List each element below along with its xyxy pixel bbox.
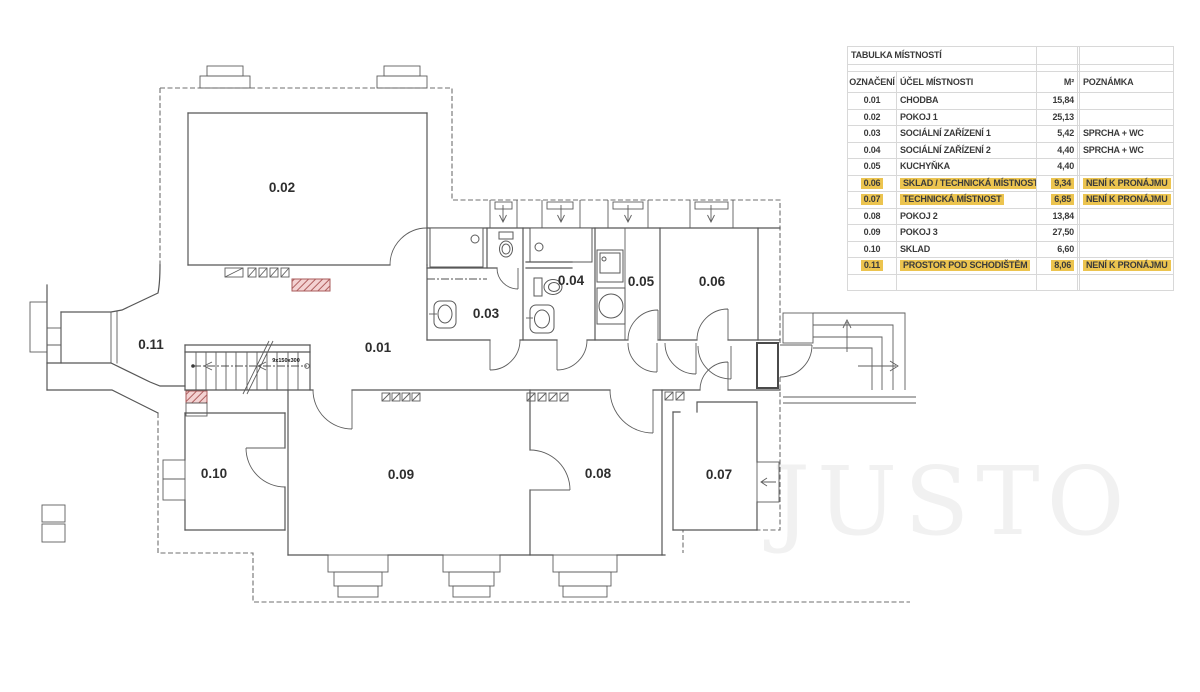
table-title: TABULKA MÍSTNOSTÍ [848,47,1037,64]
cell-note [1080,225,1173,241]
table-row: 0.04SOCIÁLNÍ ZAŘÍZENÍ 24,40SPRCHA + WC [848,142,1173,159]
cell-note: SPRCHA + WC [1080,126,1173,142]
room-label-0.06: 0.06 [699,274,726,289]
cell-area: 4,40 [1037,159,1080,175]
cell-designation: 0.04 [848,143,897,159]
cell-purpose: SOCIÁLNÍ ZAŘÍZENÍ 1 [897,126,1037,142]
cell-designation: 0.11 [848,258,897,274]
stair-annotation: 9x150x300 [272,358,300,364]
empty-cell [1037,275,1080,290]
cell-designation: 0.01 [848,93,897,109]
cell-area: 8,06 [1037,258,1080,274]
cell-note [1080,209,1173,225]
cell-purpose: SOCIÁLNÍ ZAŘÍZENÍ 2 [897,143,1037,159]
cell-note: NENÍ K PRONÁJMU [1080,192,1173,208]
cell-purpose: POKOJ 1 [897,110,1037,126]
table-row: 0.09POKOJ 327,50 [848,224,1173,241]
room-label-0.05: 0.05 [628,274,655,289]
bathroom-0-04-fixtures [526,228,592,370]
cell-area: 6,85 [1037,192,1080,208]
cell-note [1080,93,1173,109]
column-header-3: POZNÁMKA [1080,72,1173,92]
cell-designation: 0.10 [848,242,897,258]
table-title-spacer [1080,47,1173,64]
room-0-02-walls [188,113,427,265]
table-row: 0.11PROSTOR POD SCHODIŠTĚM8,06NENÍ K PRO… [848,257,1173,274]
cell-note: SPRCHA + WC [1080,143,1173,159]
cell-note [1080,242,1173,258]
column-header-2: M² [1037,72,1080,92]
cell-area: 9,34 [1037,176,1080,192]
table-title-row: TABULKA MÍSTNOSTÍ [848,47,1173,64]
empty-cell [897,275,1037,290]
table-row: 0.07TECHNICKÁ MÍSTNOST6,85NENÍ K PRONÁJM… [848,191,1173,208]
room-0-06-doors [665,309,731,379]
room-label-0.04: 0.04 [558,273,585,288]
room-label-0.09: 0.09 [388,467,414,482]
cell-area: 13,84 [1037,209,1080,225]
cell-note: NENÍ K PRONÁJMU [1080,258,1173,274]
entry-stairs [780,313,916,403]
cell-purpose: CHODBA [897,93,1037,109]
room-label-0.01: 0.01 [365,340,392,355]
cell-purpose: SKLAD / TECHNICKÁ MÍSTNOST [897,176,1037,192]
table-row: 0.03SOCIÁLNÍ ZAŘÍZENÍ 15,42SPRCHA + WC [848,125,1173,142]
cell-purpose: POKOJ 3 [897,225,1037,241]
room-label-0.02: 0.02 [269,180,295,195]
window-bays-north [200,66,427,88]
cell-note: NENÍ K PRONÁJMU [1080,176,1173,192]
light-wells [490,200,733,228]
cell-area: 15,84 [1037,93,1080,109]
cell-note [1080,110,1173,126]
entry-door [780,345,812,377]
entry-right-arrow [858,361,898,371]
table-title-spacer [1037,47,1080,64]
cell-purpose: KUCHYŇKA [897,159,1037,175]
cell-purpose: PROSTOR POD SCHODIŠTĚM [897,258,1037,274]
empty-cell [848,275,897,290]
cell-area: 4,40 [1037,143,1080,159]
column-header-1: ÚČEL MÍSTNOSTI [897,72,1037,92]
gap-cell [1080,65,1173,71]
bottom-rooms-walls [185,390,757,555]
window-west-0-10 [42,460,185,542]
window-bays-south [328,555,617,597]
floor-plan-page: { "table": { "title": "TABULKA MÍSTNOSTÍ… [0,0,1200,692]
cell-designation: 0.05 [848,159,897,175]
cell-designation: 0.07 [848,192,897,208]
table-row: 0.10SKLAD6,60 [848,241,1173,258]
cell-area: 6,60 [1037,242,1080,258]
cell-designation: 0.08 [848,209,897,225]
room-label-0.10: 0.10 [201,466,227,481]
cell-note [1080,159,1173,175]
table-header-row: OZNAČENÍÚČEL MÍSTNOSTIM²POZNÁMKA [848,71,1173,92]
cell-area: 27,50 [1037,225,1080,241]
bathroom-0-03-fixtures [427,228,520,370]
empty-cell [1080,275,1173,290]
cell-designation: 0.09 [848,225,897,241]
room-label-0.08: 0.08 [585,466,612,481]
table-row: 0.02POKOJ 125,13 [848,109,1173,126]
table-row: 0.06SKLAD / TECHNICKÁ MÍSTNOST9,34NENÍ K… [848,175,1173,192]
room-0-07-hatch [757,462,779,502]
cell-purpose: SKLAD [897,242,1037,258]
table-row: 0.05KUCHYŇKA4,40 [848,158,1173,175]
cell-designation: 0.02 [848,110,897,126]
gap-cell [848,65,1037,71]
corridor-doors [313,362,728,433]
cell-area: 25,13 [1037,110,1080,126]
table-row: 0.08POKOJ 213,84 [848,208,1173,225]
room-label-0.03: 0.03 [473,306,500,321]
staircase: 9x150x300 [185,341,310,394]
chimney-hatch [186,279,330,416]
cell-purpose: POKOJ 2 [897,209,1037,225]
cell-purpose: TECHNICKÁ MÍSTNOST [897,192,1037,208]
cell-designation: 0.03 [848,126,897,142]
room-label-0.11: 0.11 [138,337,164,352]
room-table: TABULKA MÍSTNOSTÍOZNAČENÍÚČEL MÍSTNOSTIM… [847,46,1174,291]
table-empty-row [848,274,1173,290]
room-labels: 0.010.020.030.040.050.060.070.080.090.10… [138,180,732,482]
table-gap-row [848,64,1173,71]
table-row: 0.01CHODBA15,84 [848,92,1173,109]
cell-designation: 0.06 [848,176,897,192]
gap-cell [1037,65,1080,71]
kitchenette-0-05-fixtures [597,228,658,372]
entry-up-arrow [843,320,851,352]
entry-shaft [757,343,778,388]
room-label-0.07: 0.07 [706,467,732,482]
column-header-0: OZNAČENÍ [848,72,897,92]
stair-break-line [243,341,273,394]
cell-area: 5,42 [1037,126,1080,142]
